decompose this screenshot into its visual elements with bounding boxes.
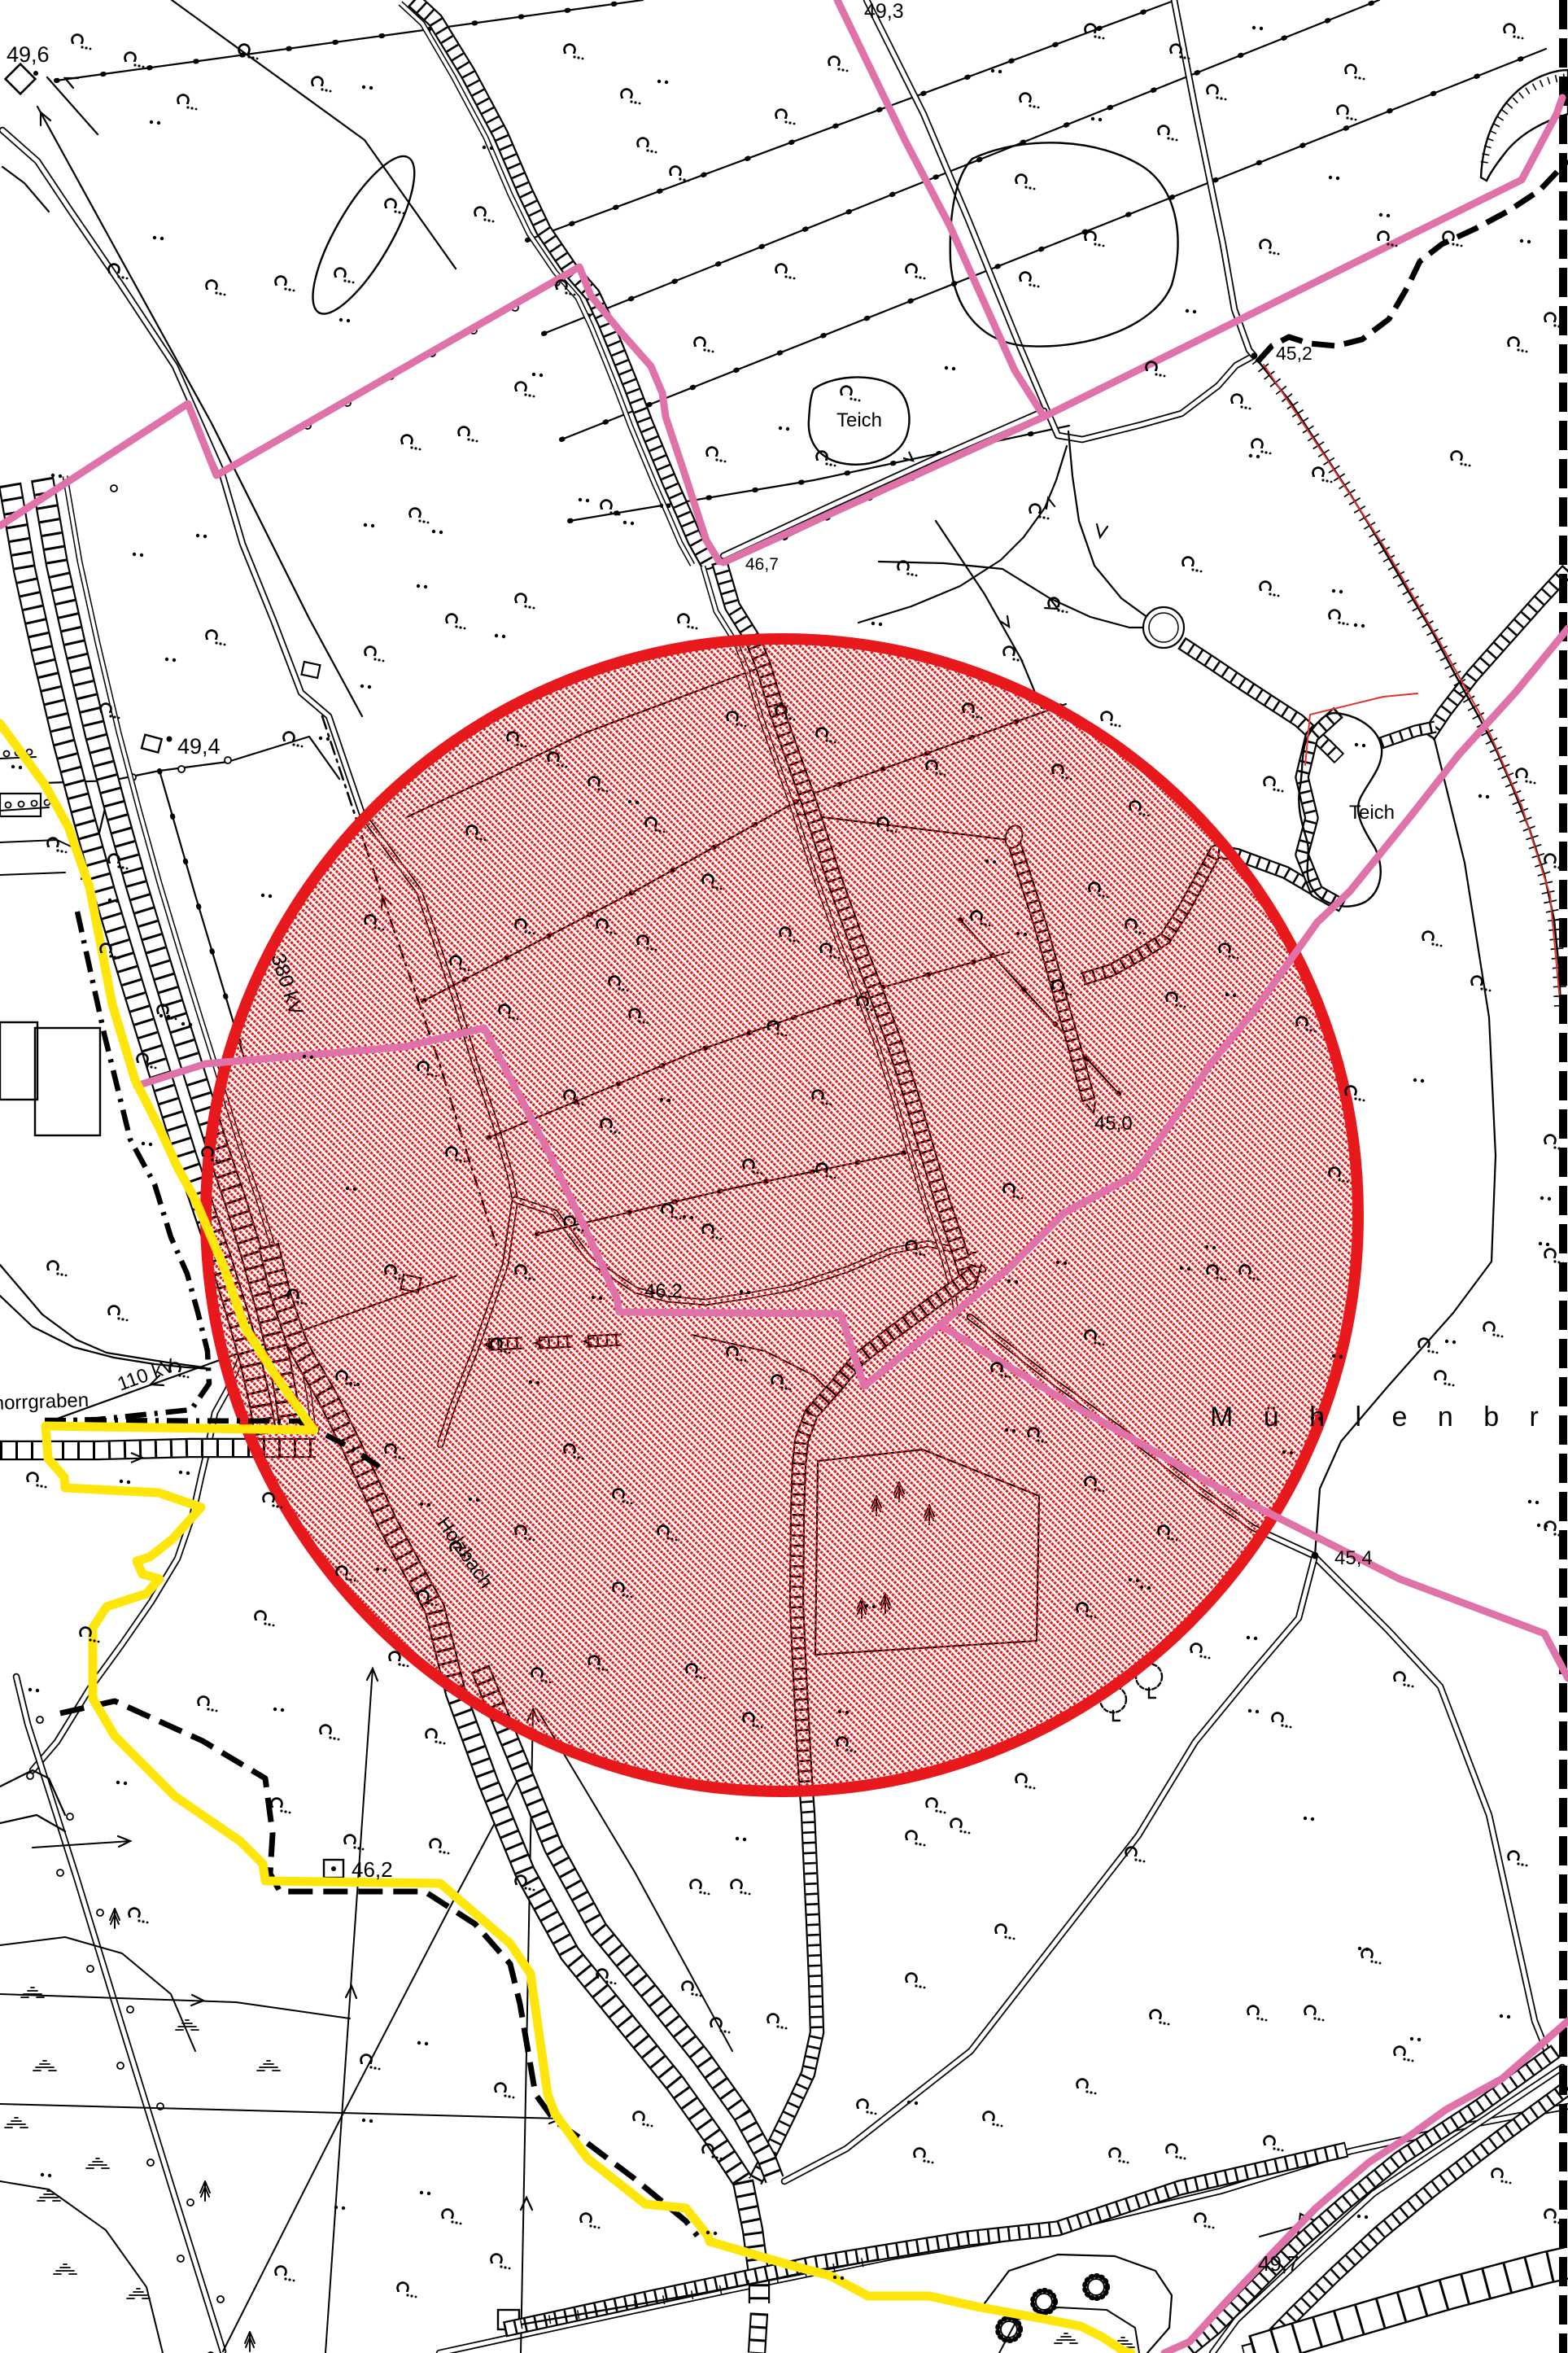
svg-text:Teich: Teich [1349, 802, 1395, 824]
svg-text:Teich: Teich [836, 409, 882, 431]
svg-text:49,3: 49,3 [864, 0, 904, 23]
svg-text:49,6: 49,6 [7, 42, 50, 67]
svg-text:M ü h l e n b r: M ü h l e n b r [1210, 1402, 1550, 1432]
svg-text:49,4: 49,4 [177, 734, 221, 759]
svg-text:49,7: 49,7 [1258, 2251, 1299, 2276]
svg-text:horrgraben: horrgraben [0, 1389, 90, 1415]
svg-text:46,7: 46,7 [745, 555, 779, 574]
svg-text:46,2: 46,2 [352, 1857, 393, 1882]
svg-text:45,4: 45,4 [1334, 1547, 1373, 1569]
svg-text:45,2: 45,2 [1276, 343, 1312, 364]
svg-text:46,2: 46,2 [644, 1280, 683, 1302]
svg-text:45,0: 45,0 [1094, 1113, 1133, 1135]
